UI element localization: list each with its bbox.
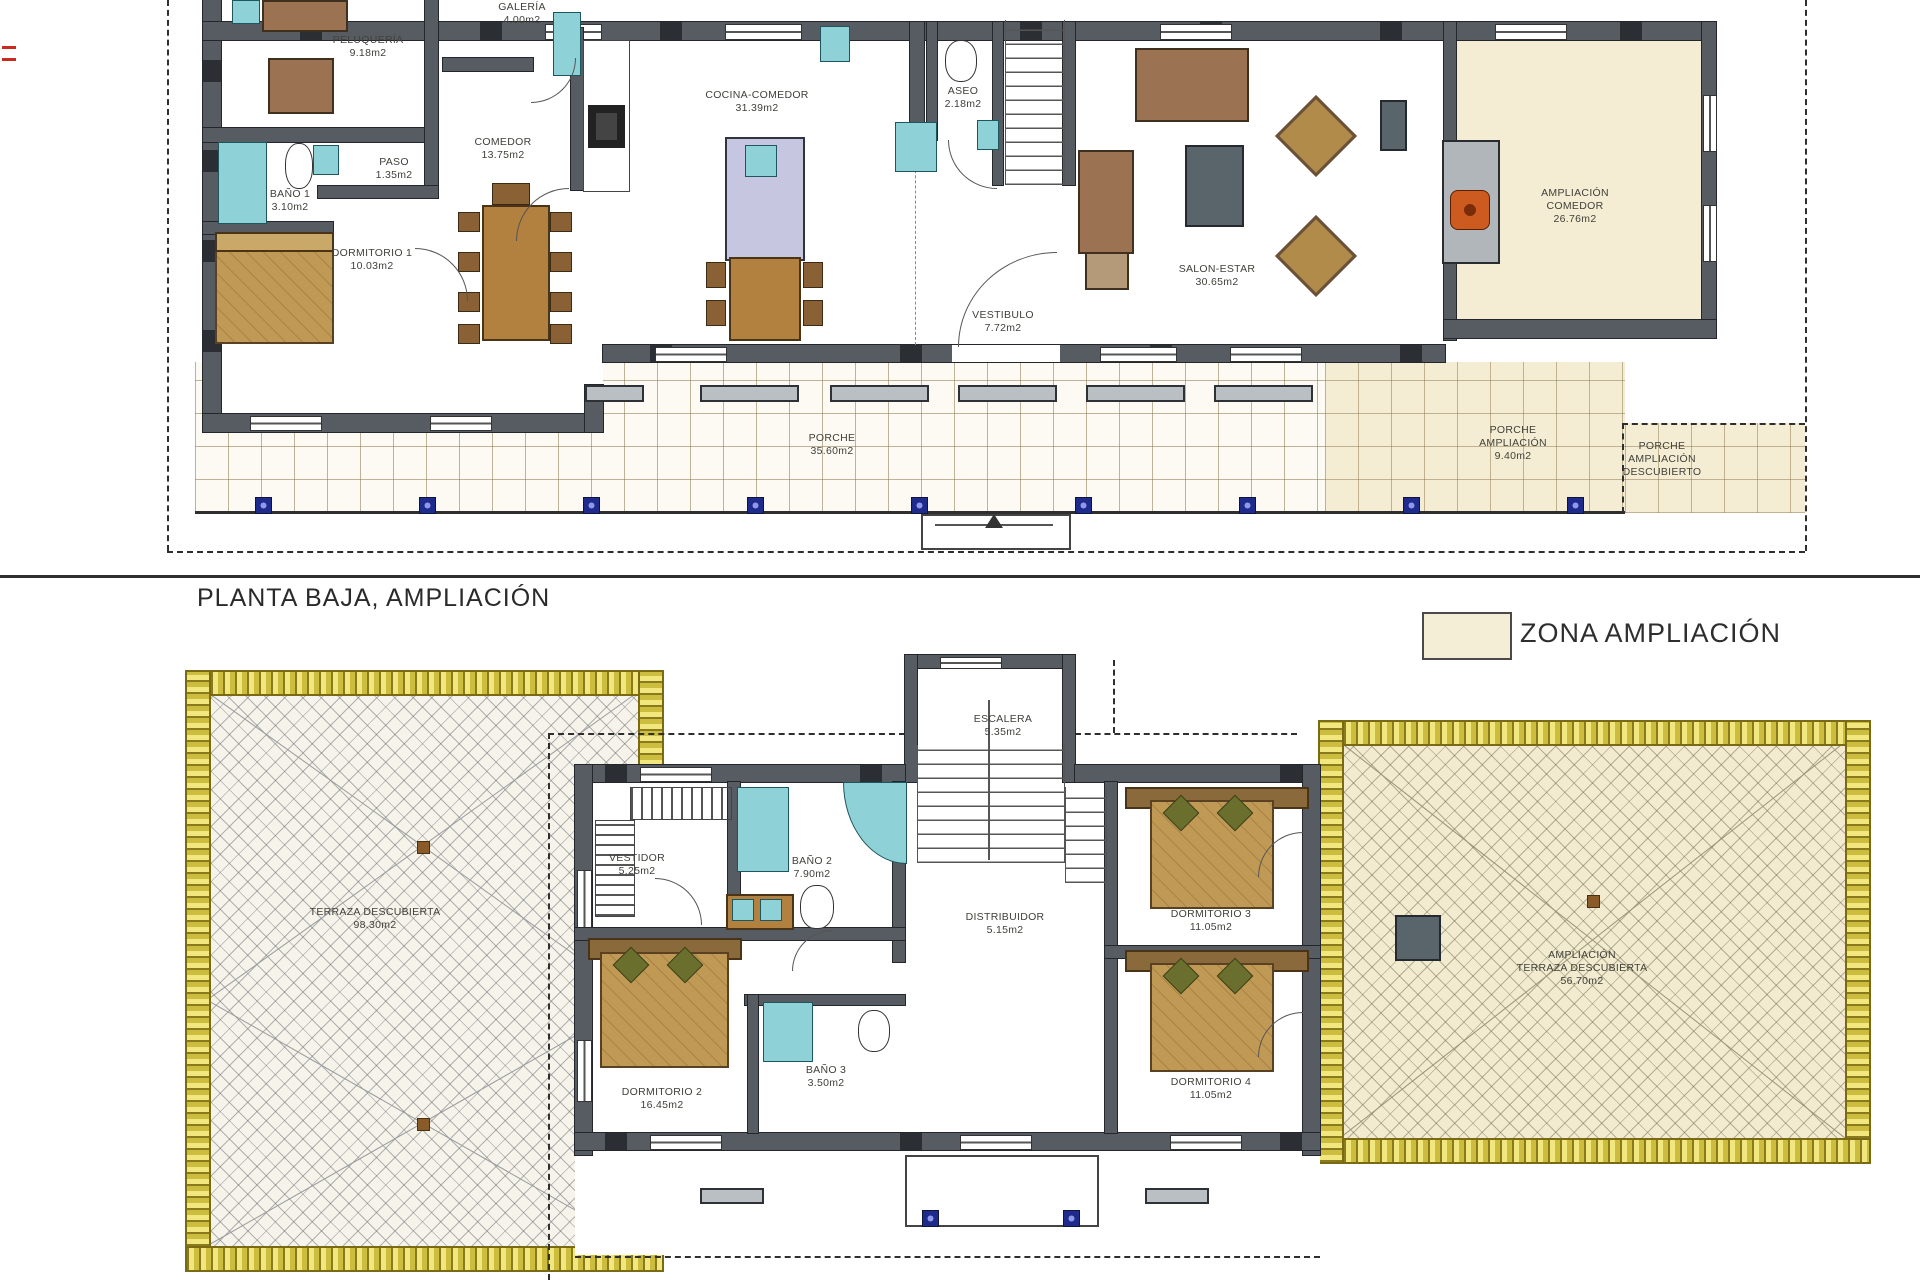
terrace-border [1318,720,1871,746]
room-label-porche: PORCHE 35.60m2 [809,432,856,458]
room-area: 1.35m2 [376,169,413,182]
wall [748,995,758,1133]
room-label-bano-2: BAÑO 2 7.90m2 [792,855,832,881]
room-name: PORCHE [809,432,856,445]
room-name: DORMITORIO 1 [332,247,412,260]
porch-beam [1214,385,1313,402]
sofa [1078,150,1134,254]
room-area: 10.03m2 [332,260,412,273]
window [650,1135,722,1150]
terrace-border [185,670,664,696]
chair [706,262,726,288]
room-label-escalera: ESCALERA 5.35m2 [974,713,1032,739]
room-name: PORCHE [1479,424,1547,437]
room-label-paso: PASO 1.35m2 [376,156,413,182]
coffee-table [1185,145,1244,227]
chair [458,324,480,344]
room-name: DORMITORIO 3 [1171,908,1251,921]
room-label-bano-3: BAÑO 3 3.50m2 [806,1064,846,1090]
room-name: ESCALERA [974,713,1032,726]
toilet [858,1010,890,1052]
toilet [800,885,834,929]
wall [905,655,917,782]
window [577,870,592,932]
room-area: 5.35m2 [974,726,1032,739]
entry-door-gap [952,345,1060,362]
red-tick [2,58,16,61]
room-label-aseo: ASEO 2.18m2 [945,85,982,111]
sink [732,899,754,921]
room-label-porche-ampliacion: PORCHE AMPLIACIÓN 9.40m2 [1479,424,1547,463]
terrace-border [638,670,664,769]
column [900,345,922,362]
porch-column-marker [1075,497,1092,514]
room-name: BAÑO 3 [806,1064,846,1077]
bed-head [215,232,334,252]
room-area: 4.00m2 [498,14,546,27]
floor-plan-sheet: GALERÍA 4.00m2 PELUQUERÍA 9.18m2 PASO 1.… [0,0,1920,1280]
porch-column-marker [1063,1210,1080,1227]
column [605,1133,627,1150]
wall [910,22,924,122]
room-area: 11.05m2 [1171,1089,1251,1102]
room-label-ampliacion-comedor: AMPLIACIÓN COMEDOR 26.76m2 [1541,187,1609,226]
column [900,1133,922,1150]
column [1400,345,1422,362]
staircase-side-flight [1065,787,1107,883]
fireplace-icon [1450,190,1490,230]
room-label-dormitorio-2: DORMITORIO 2 16.45m2 [622,1086,702,1112]
porch-column-marker [1403,497,1420,514]
boundary-dashed [1622,423,1805,425]
shower [218,142,267,224]
legend-swatch [1422,612,1512,660]
drain-marker [1587,895,1600,908]
room-name: GALERÍA [498,1,546,14]
room-label-galeria: GALERÍA 4.00m2 [498,1,546,27]
room-name: PELUQUERÍA [333,34,404,47]
wall [1702,22,1716,338]
water-heater [895,122,937,172]
room-area: 3.10m2 [270,201,310,214]
ottoman [1085,252,1129,290]
porch-column-marker [922,1210,939,1227]
room-area: 35.60m2 [809,445,856,458]
boundary-dashed [167,551,1805,553]
room-name: BAÑO 2 [792,855,832,868]
tv-unit [1380,100,1407,151]
room-label-dormitorio-3: DORMITORIO 3 11.05m2 [1171,908,1251,934]
chair [550,252,572,272]
room-area: 5.15m2 [966,924,1045,937]
porch-column-marker [1567,497,1584,514]
column [660,22,682,40]
room-label-distribuidor: DISTRIBUIDOR 5.15m2 [966,911,1045,937]
window [725,24,802,40]
porch-column-marker [255,497,272,514]
ampliacion-dashed [1075,733,1297,735]
room-name: VESTIDOR [609,852,665,865]
kitchen-table [729,257,801,341]
staircase [1005,20,1065,185]
room-label-bano-1: BAÑO 1 3.10m2 [270,188,310,214]
room-area: 11.05m2 [1171,921,1251,934]
room-name: DISTRIBUIDOR [966,911,1045,924]
sink [760,899,782,921]
porch-column-marker [1239,497,1256,514]
room-area: 7.72m2 [972,322,1034,335]
room-label-ampliacion-terraza: AMPLIACIÓN TERRAZA DESCUBIERTA 56.70m2 [1517,949,1648,988]
stove-burners [596,113,617,140]
chair [492,183,530,205]
window [1703,205,1717,262]
window [1170,1135,1242,1150]
room-name: COCINA-COMEDOR [705,89,808,102]
porch-beam [1145,1188,1209,1204]
chair [803,262,823,288]
window [940,657,1002,669]
red-tick [2,46,16,49]
room-area: 30.65m2 [1179,276,1256,289]
peluqueria-basin [232,0,260,24]
window [960,1135,1032,1150]
room-label-cocina-comedor: COCINA-COMEDOR 31.39m2 [705,89,808,115]
room-area: 13.75m2 [475,149,532,162]
staircase [917,745,1065,863]
island-sink [745,145,777,177]
window [1100,347,1177,362]
room-name: COMEDOR [475,136,532,149]
window [430,416,492,431]
window [1703,95,1717,152]
porch-beam [700,1188,764,1204]
room-area: 7.90m2 [792,868,832,881]
terrace-border [1318,720,1344,1164]
porch-beam [830,385,929,402]
bathtub [737,787,789,872]
closet-rack [630,787,732,820]
boundary-dashed [167,0,169,551]
porch-beam [1086,385,1185,402]
room-name: BAÑO 1 [270,188,310,201]
column [1280,1133,1302,1150]
chair [803,300,823,326]
porch-ampliacion-tiles [1325,362,1625,513]
toilet [945,40,977,82]
bed-dormitorio-1 [215,245,334,344]
room-name: DORMITORIO 4 [1171,1076,1251,1089]
room-area: 31.39m2 [705,102,808,115]
window [1495,24,1567,40]
window [577,1040,592,1102]
north-arrow [985,514,1003,528]
fridge [820,26,850,62]
window [250,416,322,431]
room-name: TERRAZA DESCUBIERTA [1517,962,1648,975]
room-area: 98.30m2 [310,919,441,932]
wall [425,0,438,186]
chair [550,324,572,344]
page-title: PLANTA BAJA, AMPLIACIÓN [197,584,550,613]
chair [458,252,480,272]
porch-column-marker [583,497,600,514]
room-label-terraza: TERRAZA DESCUBIERTA 98.30m2 [310,906,441,932]
room-label-dormitorio-1: DORMITORIO 1 10.03m2 [332,247,412,273]
column [860,765,882,782]
column [1620,22,1642,40]
sofa [1135,48,1249,122]
room-area: 16.45m2 [622,1099,702,1112]
room-area: 2.18m2 [945,98,982,111]
window [1160,24,1232,40]
terrace-border [1318,1138,1871,1164]
terrace-border [185,670,211,1272]
window [640,767,712,782]
room-name: VESTIBULO [972,309,1034,322]
room-name: PORCHE [1623,440,1702,453]
wall [318,186,438,198]
room-label-peluqueria: PELUQUERÍA 9.18m2 [333,34,404,60]
chair [706,300,726,326]
wall [203,128,438,142]
terrace-pillar [1395,915,1441,961]
porch-column-marker [911,497,928,514]
porch-beam [958,385,1057,402]
drain-marker [417,1118,430,1131]
porch-column-marker [419,497,436,514]
peluqueria-sofa [262,0,348,32]
room-name: TERRAZA DESCUBIERTA [310,906,441,919]
porch-beam [700,385,799,402]
column [1280,765,1302,782]
room-name: AMPLIACIÓN [1541,187,1609,200]
room-name: AMPLIACIÓN [1517,949,1648,962]
room-area: 56.70m2 [1517,975,1648,988]
peluqueria-chair [268,58,334,114]
chair [550,292,572,312]
room-area: 3.50m2 [806,1077,846,1090]
room-name: AMPLIACIÓN [1479,437,1547,450]
window [1230,347,1302,362]
room-name: SALON-ESTAR [1179,263,1256,276]
toilet [285,143,313,189]
chair [458,212,480,232]
shower [763,1002,813,1062]
room-name: PASO [376,156,413,169]
porch-column-marker [747,497,764,514]
ampliacion-dashed [548,733,550,1280]
room-area: 9.40m2 [1479,450,1547,463]
terrace-border [1845,720,1871,1164]
boundary-dashed [575,1256,1320,1258]
wall [1444,320,1716,338]
wall [443,58,533,71]
room-area: 5.25m2 [609,865,665,878]
legend-label: ZONA AMPLIACIÓN [1520,618,1781,649]
room-label-vestidor: VESTIDOR 5.25m2 [609,852,665,878]
room-label-dormitorio-4: DORMITORIO 4 11.05m2 [1171,1076,1251,1102]
room-area: 26.76m2 [1541,213,1609,226]
boundary-dashed [1805,0,1807,551]
room-name: AMPLIACIÓN [1623,453,1702,466]
room-area: 9.18m2 [333,47,404,60]
room-name: ASEO [945,85,982,98]
sink [313,145,339,175]
room-label-porche-descubierto: PORCHE AMPLIACIÓN DESCUBIERTO [1623,440,1702,479]
column [605,765,627,782]
column [203,60,221,82]
room-label-vestibulo: VESTIBULO 7.72m2 [972,309,1034,335]
room-label-salon-estar: SALON-ESTAR 30.65m2 [1179,263,1256,289]
divider-line [0,575,1920,578]
room-name: DESCUBIERTO [1623,466,1702,479]
room-name: COMEDOR [1541,200,1609,213]
ampliacion-dashed [548,733,905,735]
room-name: DORMITORIO 2 [622,1086,702,1099]
window [655,347,727,362]
room-label-comedor: COMEDOR 13.75m2 [475,136,532,162]
column [1380,22,1402,40]
terrace-diagonals [207,692,638,1246]
drain-marker [417,841,430,854]
ampliacion-dashed [1113,660,1115,733]
porch-beam [585,385,644,402]
